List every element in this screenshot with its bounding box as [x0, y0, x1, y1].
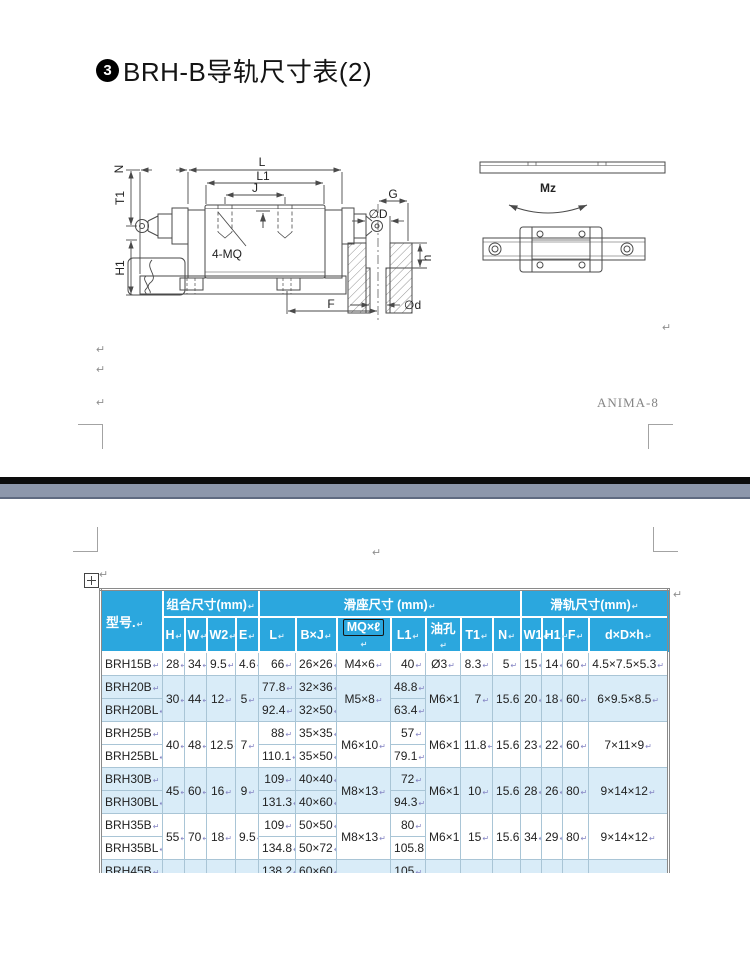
value-cell[interactable]: 45↵: [163, 768, 185, 814]
value-cell[interactable]: M10×16.5↵: [337, 860, 391, 874]
table-row: BRH15B↵28↵34↵9.5↵4.6↵66↵26×26↵M4×6↵40↵Ø3…: [101, 652, 669, 676]
technical-drawing: L L1 J N T1 H1 G ∅D h ∅d F 4-MQ: [100, 148, 675, 343]
col-header-11[interactable]: W1↵: [521, 617, 542, 652]
dim-label-D: ∅D: [368, 207, 387, 221]
value-cell[interactable]: 15.6↵: [493, 722, 521, 768]
value-cell[interactable]: 60↵: [563, 722, 589, 768]
model-cell[interactable]: BRH25BL↵: [101, 745, 163, 768]
paragraph-mark: ↵: [662, 323, 671, 334]
value-cell[interactable]: 80↵: [563, 768, 589, 814]
value-cell[interactable]: 9↵: [236, 768, 259, 814]
value-cell[interactable]: 110.1↵: [259, 745, 296, 768]
value-cell[interactable]: 86↵: [185, 860, 207, 874]
value-cell[interactable]: 48.8↵: [391, 676, 426, 699]
value-cell[interactable]: 12.5↵: [207, 722, 236, 768]
value-cell[interactable]: 9.5↵: [236, 814, 259, 860]
value-cell[interactable]: 9×14×12↵: [589, 768, 669, 814]
value-cell[interactable]: 14×20×17↵: [589, 860, 669, 874]
value-cell[interactable]: 34↵: [185, 652, 207, 676]
value-cell[interactable]: 40×60↵: [296, 791, 337, 814]
value-cell[interactable]: 48↵: [185, 722, 207, 768]
value-cell[interactable]: 14↵: [236, 860, 259, 874]
value-cell[interactable]: 92.4↵: [259, 699, 296, 722]
col-header-7[interactable]: L1↵: [391, 617, 426, 652]
value-cell[interactable]: 10↵: [461, 768, 493, 814]
value-cell[interactable]: M6×1↵: [426, 814, 461, 860]
value-cell[interactable]: 57↵: [391, 722, 426, 745]
value-cell[interactable]: 28↵: [163, 652, 185, 676]
col-header-0[interactable]: H↵: [163, 617, 185, 652]
value-cell[interactable]: 18.5↵: [461, 860, 493, 874]
model-cell[interactable]: BRH35B↵: [101, 814, 163, 837]
numbered-badge-icon: 3: [96, 59, 119, 82]
value-cell[interactable]: 15↵: [521, 652, 542, 676]
value-cell[interactable]: 18↵: [542, 676, 563, 722]
value-cell[interactable]: 109↵: [259, 814, 296, 837]
value-cell[interactable]: 16↵: [207, 768, 236, 814]
value-cell[interactable]: 70↵: [185, 814, 207, 860]
value-cell[interactable]: 38↵: [542, 860, 563, 874]
dim-label-N: N: [112, 165, 126, 174]
value-cell[interactable]: 63.4↵: [391, 699, 426, 722]
document-page: 3 BRH-B导轨尺寸表(2): [0, 0, 750, 963]
col-header-2[interactable]: W2↵: [207, 617, 236, 652]
page-gap-band: [0, 484, 750, 499]
value-cell[interactable]: 105↵: [563, 860, 589, 874]
value-cell[interactable]: 70↵: [163, 860, 185, 874]
col-header-6[interactable]: MQ×ℓ↵: [337, 617, 391, 652]
value-cell[interactable]: 32×36↵: [296, 676, 337, 699]
value-cell[interactable]: 32×50↵: [296, 699, 337, 722]
page-edge-bar: [0, 477, 750, 484]
dim-label-d: ∅d: [404, 298, 421, 312]
table-row: BRH20B↵30↵44↵12↵5↵77.8↵32×36↵M5×8↵48.8↵M…: [101, 676, 669, 699]
model-cell[interactable]: BRH20B↵: [101, 676, 163, 699]
value-cell[interactable]: 8.3↵: [461, 652, 493, 676]
value-cell[interactable]: M8×13↵: [337, 814, 391, 860]
value-cell[interactable]: 55↵: [163, 814, 185, 860]
dim-label-L1: L1: [256, 169, 270, 183]
value-cell[interactable]: M6×1↵: [426, 676, 461, 722]
value-cell[interactable]: 105.8↵: [391, 837, 426, 860]
value-cell[interactable]: 15.6↵: [493, 676, 521, 722]
paragraph-mark: ↵: [673, 590, 682, 601]
model-cell[interactable]: BRH30BL↵: [101, 791, 163, 814]
value-cell[interactable]: 16↵: [493, 860, 521, 874]
value-cell[interactable]: M6×10↵: [337, 722, 391, 768]
value-cell[interactable]: M8×13↵: [337, 768, 391, 814]
value-cell[interactable]: 35×35↵: [296, 722, 337, 745]
value-cell[interactable]: M5×8↵: [337, 676, 391, 722]
value-cell[interactable]: 15.6↵: [493, 814, 521, 860]
value-cell[interactable]: 105↵: [391, 860, 426, 874]
value-cell[interactable]: 14↵: [542, 652, 563, 676]
value-cell[interactable]: 23↵: [521, 722, 542, 768]
value-cell[interactable]: 131.3↵: [259, 791, 296, 814]
value-cell[interactable]: 6×9.5×8.5↵: [589, 676, 669, 722]
table-row: BRH45B↵70↵86↵20.5↵14↵138.2↵60×60↵M10×16.…: [101, 860, 669, 874]
col-header-4[interactable]: L↵: [259, 617, 296, 652]
text-boundary-mark: [73, 527, 98, 552]
value-cell[interactable]: 60↵: [563, 652, 589, 676]
value-cell[interactable]: 72↵: [391, 768, 426, 791]
col-header-1[interactable]: W↵: [185, 617, 207, 652]
value-cell[interactable]: 11.8↵: [461, 722, 493, 768]
model-cell[interactable]: BRH35BL↵: [101, 837, 163, 860]
paragraph-mark: ↵: [96, 365, 105, 376]
value-cell[interactable]: 34↵: [521, 814, 542, 860]
dim-label-T1: T1: [113, 191, 127, 205]
value-cell[interactable]: 40↵: [163, 722, 185, 768]
value-cell[interactable]: 50×50↵: [296, 814, 337, 837]
text-boundary-mark: [78, 424, 103, 449]
col-header-8[interactable]: 油孔↵: [426, 617, 461, 652]
dim-label-F: F: [327, 297, 334, 311]
dim-label-J: J: [252, 181, 258, 195]
value-cell[interactable]: 15↵: [461, 814, 493, 860]
dim-label-H1: H1: [113, 260, 127, 276]
dim-label-G: G: [388, 187, 397, 201]
value-cell[interactable]: 12↵: [207, 676, 236, 722]
value-cell[interactable]: 4.5×7.5×5.3↵: [589, 652, 669, 676]
value-cell[interactable]: 5↵: [493, 652, 521, 676]
value-cell[interactable]: 30↵: [163, 676, 185, 722]
table-row: BRH30B↵45↵60↵16↵9↵109↵40×40↵M8×13↵72↵M6×…: [101, 768, 669, 791]
value-cell[interactable]: 35×50↵: [296, 745, 337, 768]
value-cell[interactable]: M4×6↵: [337, 652, 391, 676]
paragraph-mark: ↵: [96, 345, 105, 356]
paragraph-mark: ↵: [99, 570, 108, 581]
dim-label-L: L: [259, 155, 266, 169]
value-cell[interactable]: 7↵: [461, 676, 493, 722]
col-header-14[interactable]: d×D×h↵: [589, 617, 669, 652]
spec-table-container: 型号.↵组合尺寸(mm)↵滑座尺寸 (mm)↵滑轨尺寸(mm)↵H↵W↵W2↵E…: [99, 588, 674, 873]
dim-label-h: h: [420, 255, 434, 262]
value-cell[interactable]: 77.8↵: [259, 676, 296, 699]
value-cell[interactable]: 80↵: [391, 814, 426, 837]
value-cell[interactable]: M6×1↵: [426, 768, 461, 814]
value-cell[interactable]: 7↵: [236, 722, 259, 768]
value-cell[interactable]: M8×1↵: [426, 860, 461, 874]
value-cell[interactable]: 4.6↵: [236, 652, 259, 676]
group-header-1[interactable]: 滑座尺寸 (mm)↵: [259, 590, 521, 618]
value-cell[interactable]: 29↵: [542, 814, 563, 860]
value-cell[interactable]: 28↵: [521, 768, 542, 814]
section-title-text: BRH-B导轨尺寸表(2): [123, 52, 372, 89]
col-header-3[interactable]: E↵: [236, 617, 259, 652]
value-cell[interactable]: 15.6↵: [493, 768, 521, 814]
value-cell[interactable]: 138.2↵: [259, 860, 296, 874]
model-cell[interactable]: BRH30B↵: [101, 768, 163, 791]
value-cell[interactable]: 45↵: [521, 860, 542, 874]
table-row: BRH35B↵55↵70↵18↵9.5↵109↵50×50↵M8×13↵80↵M…: [101, 814, 669, 837]
model-cell[interactable]: BRH45B↵: [101, 860, 163, 874]
value-cell[interactable]: 79.1↵: [391, 745, 426, 768]
value-cell[interactable]: 60×60↵: [296, 860, 337, 874]
value-cell[interactable]: 9×14×12↵: [589, 814, 669, 860]
value-cell[interactable]: 20↵: [521, 676, 542, 722]
value-cell[interactable]: 134.8↵: [259, 837, 296, 860]
col-header-9[interactable]: T1↵: [461, 617, 493, 652]
value-cell[interactable]: 66↵: [259, 652, 296, 676]
value-cell[interactable]: 7×11×9↵: [589, 722, 669, 768]
dimension-lines: [126, 170, 427, 314]
text-boundary-mark: [653, 527, 678, 552]
dim-label-Mz: Mz: [540, 181, 556, 195]
dim-label-4MQ: 4-MQ: [212, 247, 242, 261]
group-header-0[interactable]: 组合尺寸(mm)↵: [163, 590, 259, 618]
value-cell[interactable]: 9.5↵: [207, 652, 236, 676]
value-cell[interactable]: M6×1↵: [426, 722, 461, 768]
col-header-12[interactable]: H1↵: [542, 617, 563, 652]
text-boundary-mark: [648, 424, 673, 449]
value-cell[interactable]: 94.3↵: [391, 791, 426, 814]
value-cell[interactable]: 22↵: [542, 722, 563, 768]
section-title: 3 BRH-B导轨尺寸表(2): [96, 52, 372, 89]
top-view: [480, 162, 665, 272]
value-cell[interactable]: 40↵: [391, 652, 426, 676]
value-cell[interactable]: 26×26↵: [296, 652, 337, 676]
value-cell[interactable]: 5↵: [236, 676, 259, 722]
model-cell[interactable]: BRH20BL↵: [101, 699, 163, 722]
watermark-text: ANIMA-8: [597, 395, 659, 411]
col-header-10[interactable]: N↵: [493, 617, 521, 652]
value-cell[interactable]: 44↵: [185, 676, 207, 722]
table-move-handle-icon[interactable]: [84, 573, 99, 588]
side-section-view: [128, 204, 412, 320]
value-cell[interactable]: 26↵: [542, 768, 563, 814]
table-row: BRH25B↵40↵48↵12.5↵7↵88↵35×35↵M6×10↵57↵M6…: [101, 722, 669, 745]
value-cell[interactable]: 40×40↵: [296, 768, 337, 791]
group-header-2[interactable]: 滑轨尺寸(mm)↵: [521, 590, 669, 618]
value-cell[interactable]: 20.5↵: [207, 860, 236, 874]
value-cell[interactable]: 60↵: [563, 676, 589, 722]
value-cell[interactable]: 60↵: [185, 768, 207, 814]
model-cell[interactable]: BRH15B↵: [101, 652, 163, 676]
spec-table[interactable]: 型号.↵组合尺寸(mm)↵滑座尺寸 (mm)↵滑轨尺寸(mm)↵H↵W↵W2↵E…: [99, 588, 670, 873]
col-header-5[interactable]: B×J↵: [296, 617, 337, 652]
paragraph-mark: ↵: [372, 548, 381, 559]
model-cell[interactable]: BRH25B↵: [101, 722, 163, 745]
value-cell[interactable]: 50×72↵: [296, 837, 337, 860]
value-cell[interactable]: 18↵: [207, 814, 236, 860]
corner-header[interactable]: 型号.↵: [101, 590, 163, 653]
value-cell[interactable]: Ø3↵: [426, 652, 461, 676]
paragraph-mark: ↵: [96, 398, 105, 409]
value-cell[interactable]: 88↵: [259, 722, 296, 745]
value-cell[interactable]: 109↵: [259, 768, 296, 791]
value-cell[interactable]: 80↵: [563, 814, 589, 860]
